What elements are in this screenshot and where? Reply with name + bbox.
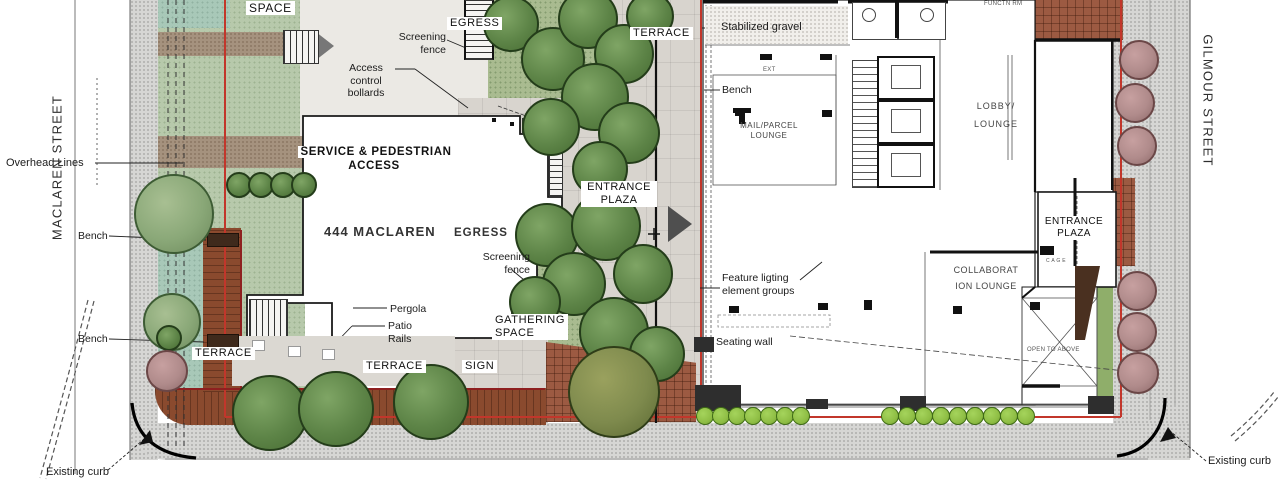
label-egress-mid: EGRESS — [454, 227, 508, 241]
patio-table — [288, 346, 301, 357]
label-terrace-top: TERRACE — [630, 27, 693, 40]
tree — [1117, 312, 1157, 352]
wall-pier — [1088, 396, 1114, 414]
hedge-bush — [881, 407, 899, 425]
street-label-gilmour: GILMOUR STREET — [1201, 26, 1216, 176]
label-terrace-left: TERRACE — [192, 347, 255, 360]
label-pergola: Pergola — [390, 303, 426, 316]
hedge-bush — [983, 407, 1001, 425]
label-feature-lighting: Feature ligting element groups — [722, 272, 794, 297]
label-egress-top: EGRESS — [447, 17, 502, 30]
label-mail-parcel-lounge: MAIL/PARCEL LOUNGE — [736, 121, 802, 140]
toilet-fixture-icon — [920, 8, 934, 22]
tree — [156, 325, 182, 351]
bench-block-upper — [207, 233, 239, 247]
label-existing-curb-left: Existing curb — [46, 466, 109, 479]
bench-block-lower — [207, 334, 239, 348]
toilet-fixture-icon — [862, 8, 876, 22]
label-space: SPACE — [246, 1, 295, 15]
seating-wall-block — [694, 337, 714, 352]
washroom-2 — [898, 2, 946, 40]
tree — [393, 364, 469, 440]
tree — [291, 172, 317, 198]
tree — [1117, 352, 1159, 394]
label-open-to-above: OPEN TO ABOVE — [1027, 347, 1080, 353]
label-patio-rails: Patio Rails — [388, 320, 412, 345]
label-seating-wall: Seating wall — [716, 336, 773, 349]
label-lobby-lounge: LOBBY/ LOUNGE — [968, 97, 1024, 133]
tree — [613, 244, 673, 304]
label-terrace-mid: TERRACE — [363, 360, 426, 373]
hedge-bush — [1017, 407, 1035, 425]
tree — [298, 371, 374, 447]
label-access-bollards: Access control bollards — [337, 62, 395, 100]
tree — [568, 346, 660, 438]
washroom-1 — [852, 2, 898, 40]
label-bench-interior: Bench — [722, 84, 752, 97]
hedge-bush — [792, 407, 810, 425]
label-existing-curb-right: Existing curb — [1208, 455, 1271, 468]
hedge-bush — [915, 407, 933, 425]
stair-core — [852, 60, 878, 188]
tree — [1117, 271, 1157, 311]
tree — [146, 350, 188, 392]
patio-table — [322, 349, 335, 360]
label-444-maclaren: 444 MACLAREN — [324, 224, 436, 240]
hedge-bush — [966, 407, 984, 425]
label-gathering-space: GATHERING SPACE — [492, 314, 568, 340]
hedge-bush — [949, 407, 967, 425]
hedge-bush — [1000, 407, 1018, 425]
label-collaboration-lounge: COLLABORAT ION LOUNGE — [950, 262, 1022, 294]
tree — [1117, 126, 1157, 166]
elevator-core — [877, 56, 935, 186]
site-plan-canvas: MACLAREN STREET GILMOUR STREET SPACE EGR… — [0, 0, 1280, 481]
label-cage: C A G E — [1046, 258, 1066, 264]
tree — [1119, 40, 1159, 80]
label-overhead-lines: Overhead Lines — [6, 157, 84, 170]
label-screening-fence-top: Screening fence — [386, 31, 446, 56]
label-ext: EXT — [763, 67, 776, 73]
label-sign: SIGN — [462, 360, 497, 373]
label-entrance-plaza-right: ENTRANCE PLAZA — [1040, 216, 1108, 240]
tree — [134, 174, 214, 254]
tree — [1115, 83, 1155, 123]
washroom-divider-wall — [895, 0, 899, 38]
hedge-bush — [932, 407, 950, 425]
wall-pier — [806, 399, 828, 409]
tree — [522, 98, 580, 156]
stair-forecourt — [283, 30, 319, 64]
hedge-bush — [898, 407, 916, 425]
label-bench-upper: Bench — [78, 230, 108, 243]
label-stabilized-gravel: Stabilized gravel — [721, 21, 802, 34]
label-bench-lower: Bench — [78, 333, 108, 346]
label-service-access-text: SERVICE & PEDESTRIAN ACCESS — [298, 146, 451, 172]
label-screening-fence-mid: Screening fence — [468, 251, 530, 276]
label-entrance-plaza: ENTRANCE PLAZA — [581, 181, 657, 207]
tree — [232, 375, 308, 451]
label-service-access: SERVICE & PEDESTRIAN ACCESS — [252, 146, 498, 174]
label-functn-rm: FUNCTN RM — [984, 1, 1022, 7]
